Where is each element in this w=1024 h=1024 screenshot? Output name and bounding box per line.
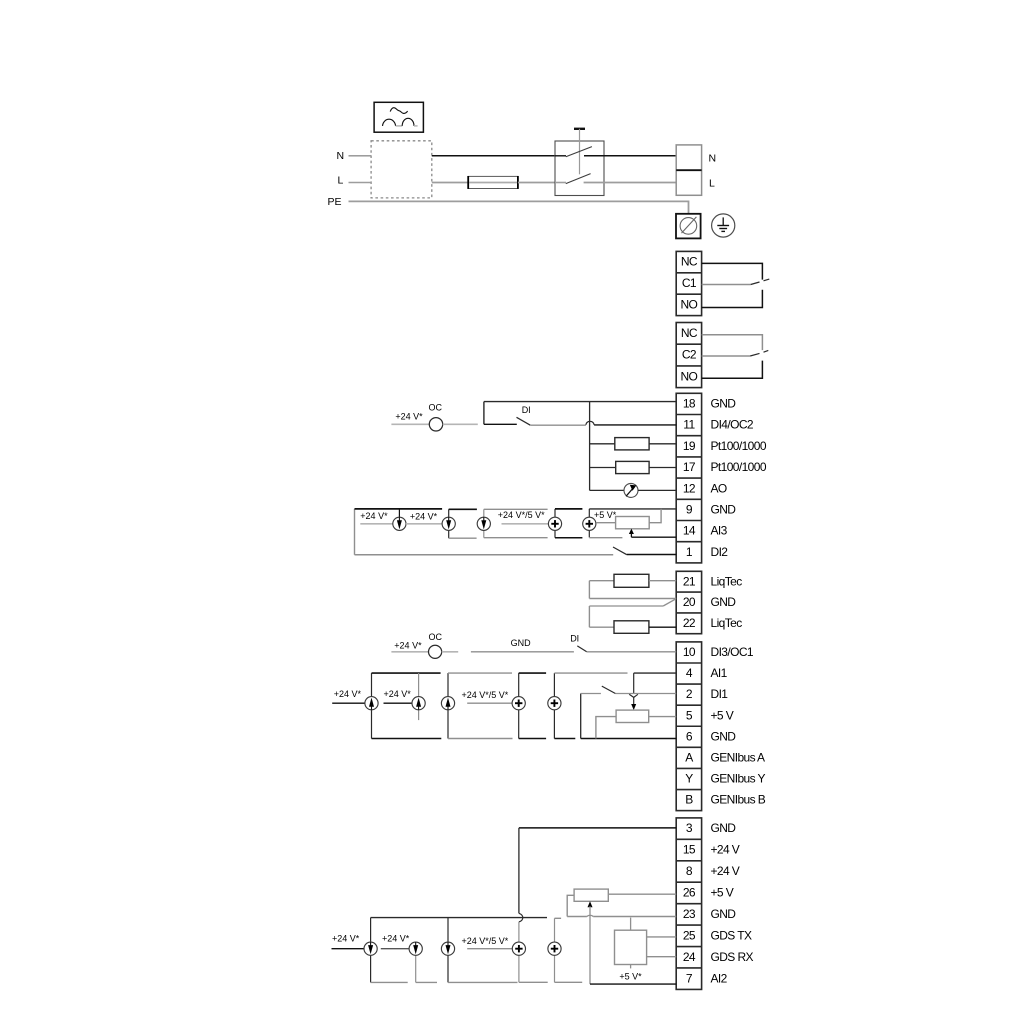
svg-text:LiqTec: LiqTec (711, 616, 743, 630)
svg-text:GDS TX: GDS TX (711, 928, 752, 942)
svg-text:21: 21 (683, 574, 696, 588)
svg-text:+24 V*: +24 V* (395, 412, 423, 422)
svg-text:Pt100/1000: Pt100/1000 (711, 460, 767, 474)
svg-text:+24 V*: +24 V* (410, 511, 438, 521)
svg-text:A: A (685, 750, 693, 764)
svg-text:+5 V: +5 V (711, 886, 734, 900)
svg-text:+24 V: +24 V (711, 843, 740, 857)
svg-text:NC: NC (681, 255, 698, 269)
svg-text:+5 V*: +5 V* (594, 510, 617, 520)
svg-text:DI: DI (570, 633, 579, 643)
svg-text:18: 18 (683, 397, 696, 411)
svg-text:7: 7 (686, 971, 693, 985)
svg-text:AI3: AI3 (711, 524, 728, 538)
svg-text:L: L (709, 178, 715, 190)
svg-text:N: N (337, 150, 345, 162)
svg-text:L: L (338, 175, 344, 187)
svg-text:AI1: AI1 (711, 666, 728, 680)
svg-text:GDS RX: GDS RX (711, 950, 754, 964)
svg-text:22: 22 (683, 616, 696, 630)
svg-text:+24 V*/5 V*: +24 V*/5 V* (462, 936, 509, 946)
svg-text:B: B (685, 793, 693, 807)
svg-text:NO: NO (680, 369, 697, 383)
svg-text:GND: GND (711, 907, 737, 921)
svg-text:GENIbus A: GENIbus A (711, 750, 766, 764)
svg-text:NC: NC (681, 326, 698, 340)
svg-text:10: 10 (683, 645, 696, 659)
svg-text:5: 5 (686, 708, 693, 722)
svg-text:+24 V*/5 V*: +24 V*/5 V* (462, 690, 509, 700)
svg-text:9: 9 (686, 503, 693, 517)
svg-text:+24 V*: +24 V* (382, 934, 410, 944)
svg-text:20: 20 (683, 595, 696, 609)
svg-text:11: 11 (683, 418, 695, 432)
svg-text:DI3/OC1: DI3/OC1 (711, 645, 754, 659)
svg-text:+5 V: +5 V (711, 708, 734, 722)
svg-text:1: 1 (686, 545, 693, 559)
svg-text:DI2: DI2 (711, 545, 729, 559)
svg-text:+24 V*/5 V*: +24 V*/5 V* (498, 510, 545, 520)
svg-text:24: 24 (683, 950, 696, 964)
svg-text:OC: OC (429, 632, 443, 642)
svg-text:GENIbus B: GENIbus B (711, 793, 766, 807)
svg-text:GND: GND (711, 595, 737, 609)
svg-text:GND: GND (711, 821, 737, 835)
svg-text:6: 6 (686, 729, 693, 743)
svg-text:Y: Y (685, 772, 693, 786)
svg-text:LiqTec: LiqTec (711, 574, 743, 588)
svg-text:3: 3 (686, 821, 693, 835)
svg-text:+5 V*: +5 V* (619, 972, 642, 982)
svg-text:14: 14 (683, 524, 696, 538)
svg-text:C2: C2 (682, 348, 697, 362)
svg-text:+24 V*: +24 V* (332, 934, 360, 944)
svg-text:GND: GND (711, 397, 737, 411)
svg-text:26: 26 (683, 886, 696, 900)
svg-text:8: 8 (686, 864, 693, 878)
svg-text:+24 V*: +24 V* (334, 689, 362, 699)
svg-text:NO: NO (680, 298, 697, 312)
svg-text:AO: AO (711, 481, 727, 495)
svg-text:23: 23 (683, 907, 696, 921)
svg-text:GND: GND (711, 503, 737, 517)
svg-text:17: 17 (683, 460, 696, 474)
svg-text:PE: PE (328, 196, 342, 208)
svg-text:+24 V*: +24 V* (384, 689, 412, 699)
svg-text:N: N (709, 153, 717, 165)
svg-text:OC: OC (429, 403, 443, 413)
svg-text:12: 12 (683, 481, 696, 495)
svg-text:AI2: AI2 (711, 971, 728, 985)
svg-text:DI: DI (522, 405, 531, 415)
svg-text:+24 V: +24 V (711, 864, 740, 878)
svg-text:25: 25 (683, 928, 696, 942)
svg-text:19: 19 (683, 439, 696, 453)
svg-text:C1: C1 (682, 276, 697, 290)
svg-text:GND: GND (711, 729, 737, 743)
svg-text:+24 V*: +24 V* (394, 641, 422, 651)
svg-text:GND: GND (511, 638, 531, 648)
svg-text:15: 15 (683, 843, 696, 857)
svg-text:DI4/OC2: DI4/OC2 (711, 418, 754, 432)
svg-text:+24 V*: +24 V* (360, 511, 388, 521)
svg-text:GENIbus Y: GENIbus Y (711, 772, 766, 786)
svg-text:Pt100/1000: Pt100/1000 (711, 439, 767, 453)
svg-text:4: 4 (686, 666, 693, 680)
svg-text:2: 2 (686, 687, 693, 701)
svg-text:DI1: DI1 (711, 687, 729, 701)
